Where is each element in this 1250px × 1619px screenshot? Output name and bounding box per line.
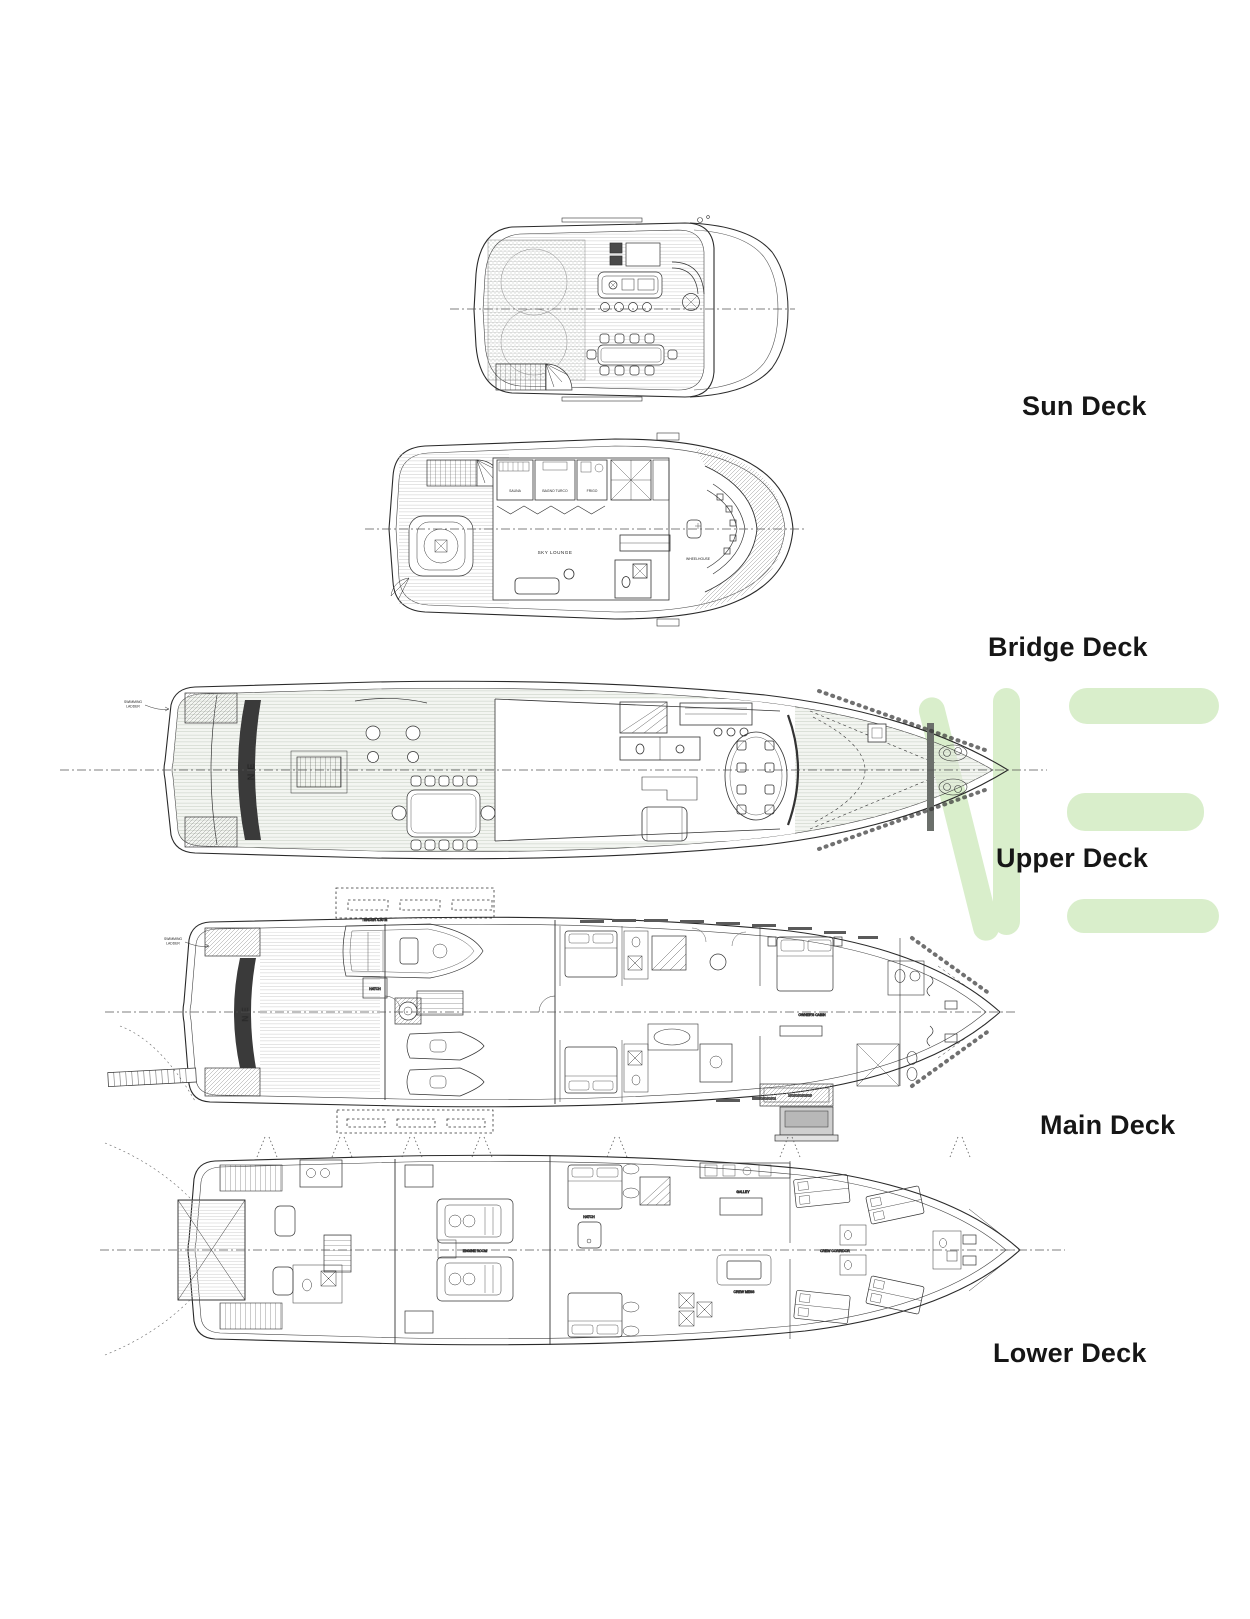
overhead-opening-dashed	[336, 888, 494, 918]
room-label-fridge: FRIGO	[587, 489, 598, 493]
crew-mess-label: CREW MESS	[734, 1290, 756, 1294]
tender-label: TENDER 4.50 m	[362, 918, 387, 922]
gangway-projection	[775, 1107, 838, 1141]
deck-label-upper: Upper Deck	[996, 843, 1148, 874]
office-lobby	[692, 928, 746, 970]
main-deck-plan: NE	[100, 876, 1020, 1116]
spiral-stairs	[652, 936, 686, 970]
room-label-turkish-bath: BAGNO TURCO	[542, 489, 568, 493]
generator	[405, 1165, 433, 1187]
antenna-icon	[698, 218, 703, 223]
galley-label: GALLEY	[736, 1190, 750, 1194]
watermark-letter-e-mid	[1067, 793, 1204, 831]
deck-label-lower: Lower Deck	[993, 1338, 1147, 1369]
platform-swing-arc	[105, 1143, 190, 1355]
owner-bathroom	[857, 961, 924, 1086]
room-label-sky-lounge: SKY LOUNGE	[538, 550, 573, 555]
hardtop-front-outline	[690, 223, 788, 397]
jet-ski	[407, 1032, 484, 1096]
engine-starboard	[437, 1257, 513, 1301]
guest-cabins	[560, 926, 746, 1102]
swim-ladder-annotation: SWIMMING LADDER	[124, 700, 169, 711]
spiral-stairs	[640, 1177, 670, 1205]
owner-bath	[648, 1024, 698, 1050]
passerelle	[108, 1068, 197, 1087]
svg-text:SWIMMING: SWIMMING	[124, 700, 142, 704]
watermark-letter-e-bottom	[1067, 899, 1219, 933]
engine-room-label: ENGINE ROOM	[463, 1249, 488, 1253]
bar-stool	[629, 303, 638, 312]
engine-port	[437, 1199, 513, 1243]
owner-study-desk	[700, 1044, 732, 1082]
crew-mess: CREW MESS	[717, 1255, 771, 1294]
beach-club-stairs	[324, 1235, 351, 1272]
bridge-deck-plan: SAUNA BAGNO TURCO FRIGO SKY LOUNGE WHEEL…	[365, 432, 805, 627]
beach-club	[273, 1159, 395, 1343]
crew-corridor-label: CREW CORRIDOR	[820, 1249, 850, 1253]
guest-bed	[568, 1293, 622, 1337]
laundry	[679, 1293, 712, 1326]
svg-text:LADDER: LADDER	[126, 705, 140, 709]
owners-cabin-label: OWNER'S CABIN	[798, 1013, 826, 1017]
sunpad-area	[488, 240, 585, 380]
generator	[405, 1311, 433, 1333]
yacht-name: NE	[241, 1004, 250, 1021]
crew-bunks	[866, 1276, 925, 1315]
garage-stairs	[417, 991, 463, 1015]
radial-stairs	[611, 460, 651, 500]
room-label-wheelhouse: WHEELHOUSE	[686, 557, 711, 561]
room-label-sauna: SAUNA	[509, 489, 521, 493]
galley: GALLEY	[700, 1163, 790, 1215]
beach-club-sofa	[275, 1206, 295, 1236]
deck-label-sun: Sun Deck	[1022, 391, 1147, 422]
guest-bed	[565, 1047, 617, 1093]
owner-bed	[768, 937, 842, 991]
windlass-bulkhead	[927, 723, 934, 831]
svg-text:LADDER: LADDER	[166, 942, 180, 946]
svg-text:SWIMMING: SWIMMING	[164, 937, 182, 941]
owner-dresser	[780, 1026, 822, 1036]
swim-ladder-annotation: SWIMMING LADDER	[164, 937, 209, 948]
floor-hatch	[578, 1222, 601, 1248]
hatch-label: HATCH	[369, 987, 381, 991]
watermark-letter-e-top	[1069, 688, 1219, 724]
deck-hatch	[868, 724, 886, 742]
aft-stairs	[297, 757, 341, 787]
crew-bunks	[793, 1174, 850, 1207]
bar-stool	[601, 303, 610, 312]
upper-deck-plan: NE	[55, 645, 1055, 870]
guest-bathrooms	[624, 931, 648, 1092]
guest-bed	[568, 1165, 622, 1209]
overhead-opening-dashed	[337, 1110, 493, 1133]
lower-deck-plan: ENGINE ROOM HATCH	[95, 1103, 1070, 1353]
hatch-label: HATCH	[583, 1215, 595, 1219]
crew-bunks	[866, 1186, 925, 1225]
passerelle-swing-arc	[120, 1026, 195, 1101]
guest-bed	[565, 931, 617, 977]
bar-stool	[643, 303, 652, 312]
bar-stool	[615, 303, 624, 312]
sun-deck-plan	[450, 212, 795, 407]
overhead-vent-markers	[257, 1137, 970, 1157]
yacht-deck-plans-page: Sun Deck	[0, 0, 1250, 1619]
